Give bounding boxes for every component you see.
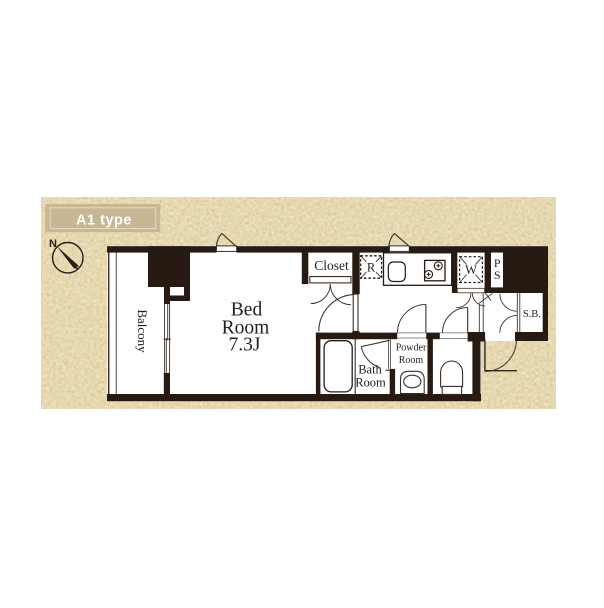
svg-text:Room: Room <box>355 375 386 389</box>
svg-text:Balcony: Balcony <box>135 309 150 353</box>
svg-text:R: R <box>367 261 376 275</box>
svg-text:A1 type: A1 type <box>76 212 132 228</box>
svg-text:S.B.: S.B. <box>523 309 541 320</box>
svg-text:Powder: Powder <box>396 343 427 354</box>
svg-text:Room: Room <box>399 355 424 366</box>
svg-text:Bath: Bath <box>358 362 382 376</box>
svg-text:7.3J: 7.3J <box>229 334 261 355</box>
svg-text:Closet: Closet <box>314 258 349 273</box>
svg-text:W: W <box>465 263 477 277</box>
svg-text:S: S <box>494 268 501 282</box>
